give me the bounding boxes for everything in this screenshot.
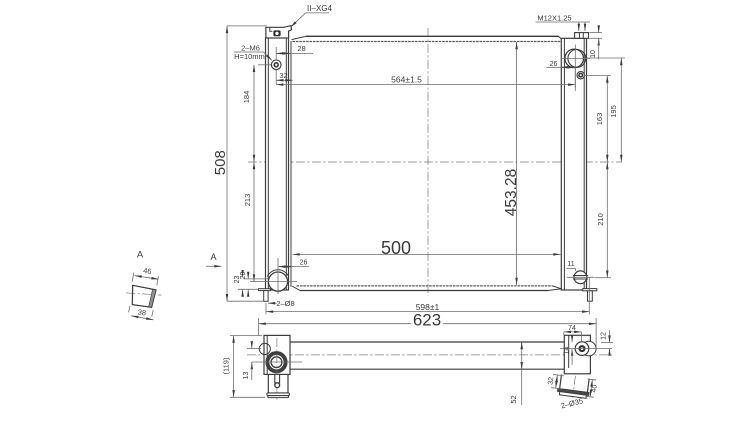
svg-text:H=10mm: H=10mm [234,52,265,61]
svg-text:32: 32 [279,71,287,80]
svg-text:28: 28 [297,44,305,53]
svg-text:2–Ø35: 2–Ø35 [560,396,584,410]
svg-text:14: 14 [563,347,570,355]
svg-text:210: 210 [596,213,605,226]
svg-text:26: 26 [300,260,308,267]
svg-text:II–XG4: II–XG4 [307,4,332,13]
svg-text:213: 213 [243,194,252,207]
svg-text:195: 195 [609,105,618,118]
svg-text:184: 184 [242,91,251,104]
svg-text:26: 26 [550,61,558,68]
svg-text:2–Ø8: 2–Ø8 [276,299,294,308]
svg-text:12: 12 [601,332,608,340]
svg-text:623: 623 [413,311,441,330]
svg-text:500: 500 [381,238,411,258]
svg-text:(119): (119) [222,357,231,374]
svg-text:46: 46 [143,266,153,276]
svg-text:M12X1.25: M12X1.25 [537,13,571,22]
svg-text:508: 508 [212,150,229,175]
svg-text:A: A [210,252,216,262]
svg-text:38: 38 [137,307,147,317]
svg-text:13: 13 [243,372,250,380]
svg-text:564±1.5: 564±1.5 [391,75,422,85]
svg-text:A: A [137,250,144,261]
svg-text:74: 74 [568,325,576,332]
svg-text:11: 11 [567,261,574,268]
svg-text:23: 23 [234,276,241,284]
svg-text:52: 52 [509,395,518,403]
svg-text:453.28: 453.28 [503,169,520,216]
svg-text:10: 10 [590,50,597,58]
svg-text:40: 40 [591,384,599,393]
svg-text:163: 163 [595,113,604,126]
svg-text:32: 32 [547,377,555,386]
